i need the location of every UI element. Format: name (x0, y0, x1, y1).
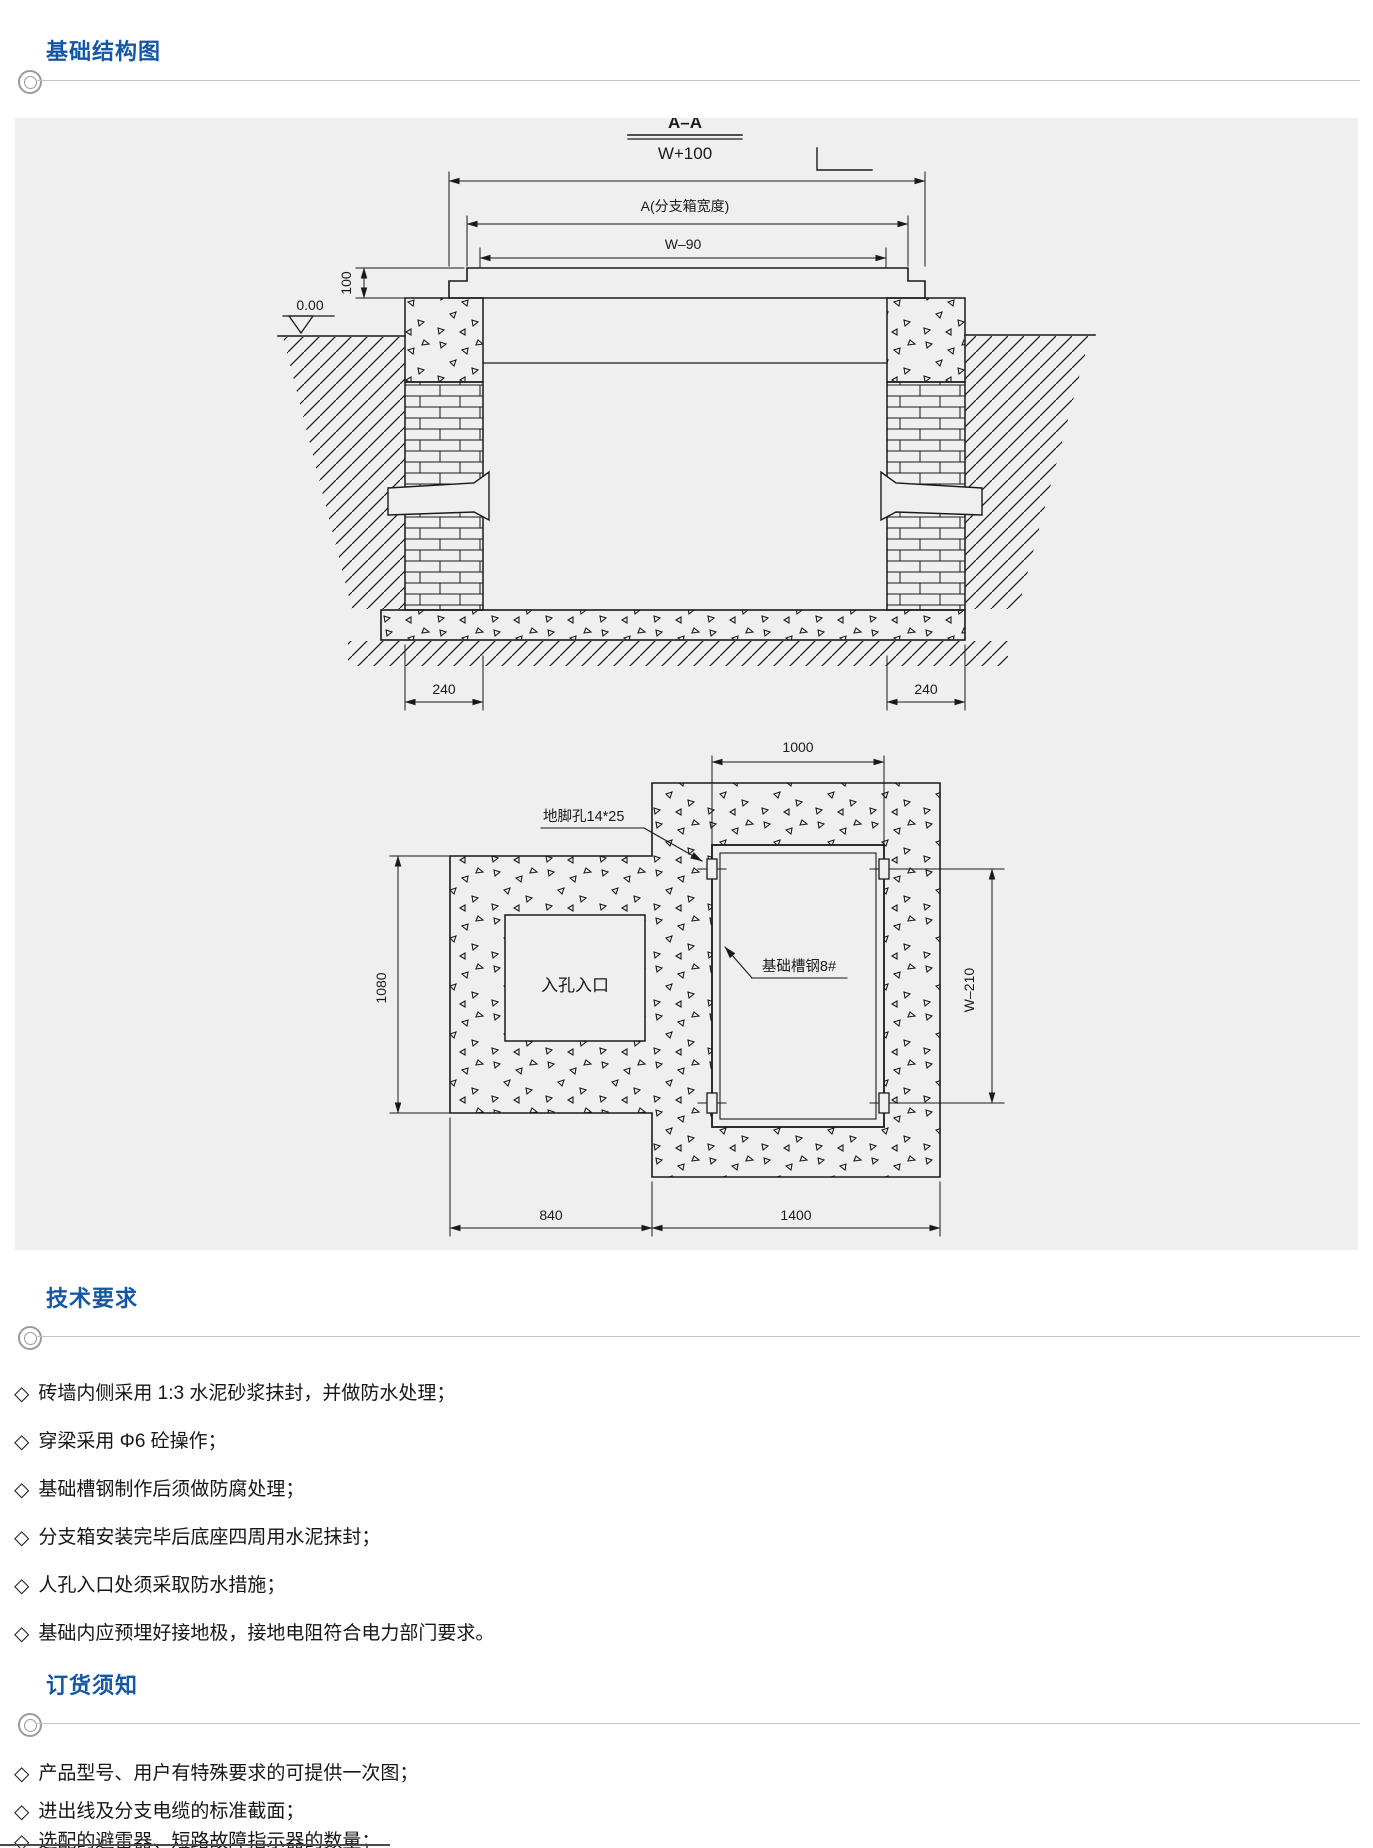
tech-item-text: 穿梁采用 Φ6 砼操作； (38, 1431, 226, 1452)
anchor-bolt-icon (707, 859, 717, 879)
tech-item-text: 人孔入口处须采取防水措施； (38, 1575, 285, 1596)
diamond-bullet-icon: ◇ (14, 1799, 29, 1824)
dim-box-width-label: A(分支箱宽度) (641, 198, 730, 214)
page-cut-line (0, 1844, 390, 1846)
level-triangle-icon (289, 316, 313, 333)
section-title-aa: A–A (668, 118, 702, 132)
manhole-label: 入孔入口 (541, 976, 609, 995)
order-item-text: 进出线及分支电缆的标准截面； (38, 1801, 304, 1822)
foundation-slab (381, 610, 965, 640)
order-item-text: 产品型号、用户有特殊要求的可提供一次图； (38, 1763, 418, 1784)
left-wall-concrete-cap (405, 298, 483, 382)
channel-steel-frame-outer (712, 845, 884, 1127)
tech-item-text: 基础槽钢制作后须做防腐处理； (38, 1479, 304, 1500)
tech-item: ◇基础槽钢制作后须做防腐处理； (14, 1474, 304, 1501)
section-ring-icon (18, 70, 42, 94)
dim-inner-width-label: W–90 (665, 236, 702, 252)
diamond-bullet-icon: ◇ (14, 1573, 29, 1598)
tech-item: ◇人孔入口处须采取防水措施； (14, 1570, 285, 1597)
tech-item: ◇基础内应预埋好接地极，接地电阻符合电力部门要求。 (14, 1618, 494, 1645)
diamond-bullet-icon: ◇ (14, 1429, 29, 1454)
diamond-bullet-icon: ◇ (14, 1525, 29, 1550)
section-ring-icon (18, 1713, 42, 1737)
level-label: 0.00 (296, 297, 323, 313)
tech-section-title: 技术要求 (46, 1281, 138, 1313)
cross-section-view: A–A W+100 A(分支箱宽度) W–90 (278, 118, 1095, 710)
channel-steel-label: 基础槽钢8# (762, 958, 836, 975)
diamond-bullet-icon: ◇ (14, 1761, 29, 1786)
order-item: ◇进出线及分支电缆的标准截面； (14, 1796, 304, 1823)
dim-wall-right-label: 240 (914, 681, 938, 697)
dim-right-height-label: W–210 (961, 968, 977, 1013)
dim-wall-left-label: 240 (432, 681, 456, 697)
plan-view: 入孔入口 1000 (373, 739, 1004, 1236)
dim-bottom-left-label: 840 (539, 1207, 563, 1223)
dim-lip-height-label: 100 (338, 271, 354, 295)
dim-w-plus-100-label: W+100 (658, 144, 712, 163)
tech-item-text: 砖墙内侧采用 1:3 水泥砂浆抹封，并做防水处理； (38, 1383, 455, 1404)
tech-item: ◇穿梁采用 Φ6 砼操作； (14, 1426, 227, 1453)
diamond-bullet-icon: ◇ (14, 1381, 29, 1406)
section-ring-icon (18, 1326, 42, 1350)
anchor-bolt-icon (879, 859, 889, 879)
section-rule (36, 80, 1360, 81)
diamond-bullet-icon: ◇ (14, 1621, 29, 1646)
section-cut-mark-icon (817, 148, 872, 170)
right-wall-concrete-cap (887, 298, 965, 382)
section-rule (36, 1336, 1360, 1337)
page: 基础结构图 (0, 0, 1373, 1848)
soil-hatch-right (965, 336, 1090, 609)
soil-hatch-bottom (348, 641, 1008, 666)
structure-section-title: 基础结构图 (46, 34, 161, 66)
anchor-hole-label: 地脚孔14*25 (543, 808, 624, 825)
tech-item: ◇分支箱安装完毕后底座四周用水泥抹封； (14, 1522, 380, 1549)
order-item: ◇产品型号、用户有特殊要求的可提供一次图； (14, 1758, 418, 1785)
foundation-drawing-panel: A–A W+100 A(分支箱宽度) W–90 (15, 118, 1358, 1250)
tech-item: ◇砖墙内侧采用 1:3 水泥砂浆抹封，并做防水处理； (14, 1378, 455, 1405)
diamond-bullet-icon: ◇ (14, 1477, 29, 1502)
dim-left-height-label: 1080 (373, 972, 389, 1003)
cover-slab (449, 268, 925, 298)
section-rule (36, 1723, 1360, 1724)
dim-frame-width-label: 1000 (782, 739, 813, 755)
tech-item-text: 分支箱安装完毕后底座四周用水泥抹封； (38, 1527, 380, 1548)
anchor-bolt-icon (707, 1093, 717, 1113)
anchor-bolt-icon (879, 1093, 889, 1113)
tech-item-text: 基础内应预埋好接地极，接地电阻符合电力部门要求。 (38, 1623, 494, 1644)
dim-bottom-right-label: 1400 (780, 1207, 811, 1223)
soil-hatch-left (283, 337, 405, 609)
foundation-structure-drawing: A–A W+100 A(分支箱宽度) W–90 (15, 118, 1358, 1250)
order-section-title: 订货须知 (46, 1668, 138, 1700)
